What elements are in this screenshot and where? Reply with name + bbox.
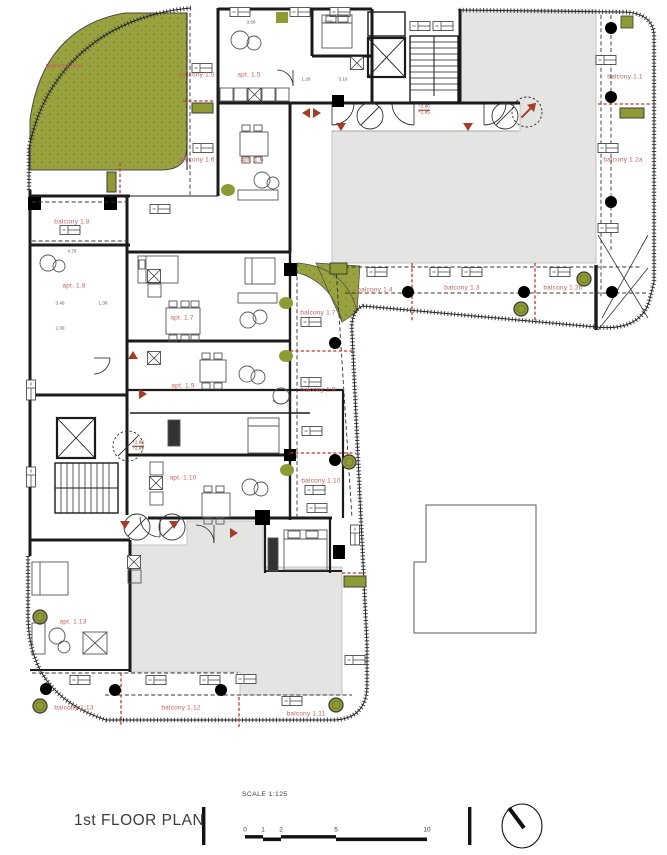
legend-graphics xyxy=(202,804,542,848)
north-arrow-icon xyxy=(502,804,542,848)
kitchen-run xyxy=(351,57,364,70)
floor-plan-drawing xyxy=(0,0,667,855)
scale-bar xyxy=(245,837,427,840)
wardrobe xyxy=(168,420,180,446)
plan-title: 1st FLOOR PLAN xyxy=(74,812,204,830)
kitchen-run xyxy=(148,352,161,365)
legend-divider-bar xyxy=(468,807,471,845)
wardrobe xyxy=(268,538,278,571)
adjacent-building-outline xyxy=(414,505,536,633)
floor-plan-sheet: planted roofbalcony 1.5apt. 1.5balcony 1… xyxy=(0,0,667,855)
scale-label: SCALE 1:125 xyxy=(242,791,288,798)
